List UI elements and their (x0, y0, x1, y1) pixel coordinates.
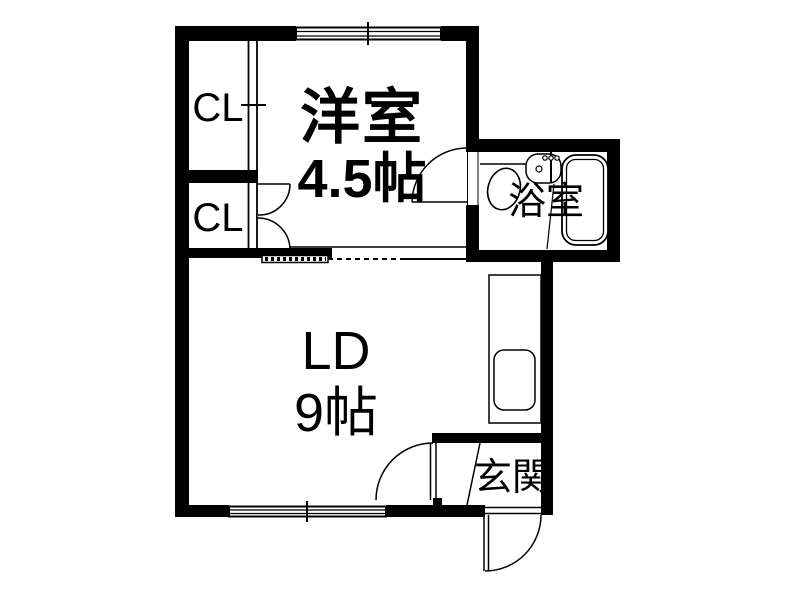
faucet-handle-icon (549, 156, 553, 160)
wall-left (175, 26, 189, 517)
faucet-handle-icon (555, 156, 559, 160)
label-living-dining: LD (301, 321, 370, 381)
wall-closet-divider (175, 170, 258, 183)
kitchen-sink-icon (494, 350, 535, 410)
wall-western-right (466, 26, 479, 139)
wall-bath-bottom (466, 250, 620, 262)
label-closet-upper: CL (192, 86, 243, 130)
label-entrance: 玄関 (474, 457, 550, 499)
faucet-handle-icon (543, 156, 547, 160)
floorplan-canvas: CL CL 洋室 4.5帖 浴室 LD 9帖 玄関 (0, 0, 800, 600)
floorplan-page: CL CL 洋室 4.5帖 浴室 LD 9帖 玄関 (0, 0, 800, 600)
label-living-dining-size: 9帖 (294, 383, 378, 443)
wall-bath-right (607, 139, 620, 262)
wall-bottom-left (175, 505, 229, 517)
window-top (296, 22, 441, 45)
label-bathroom: 浴室 (508, 181, 584, 223)
wall-bottom-mid (386, 505, 485, 517)
label-western-room: 洋室 (300, 84, 424, 151)
front-door (484, 508, 541, 572)
wall-bath-top (466, 139, 620, 152)
entrance-inner-door (376, 443, 436, 500)
wall-top-left (175, 26, 296, 41)
kitchen (489, 275, 541, 423)
closet-double-door (258, 184, 290, 250)
label-western-size: 4.5帖 (297, 149, 426, 209)
sliding-door (262, 256, 466, 263)
label-closet-lower: CL (192, 196, 243, 240)
wall-entrance-top (432, 433, 541, 443)
window-bottom (229, 501, 386, 522)
wall-bath-left-lower (466, 205, 479, 262)
